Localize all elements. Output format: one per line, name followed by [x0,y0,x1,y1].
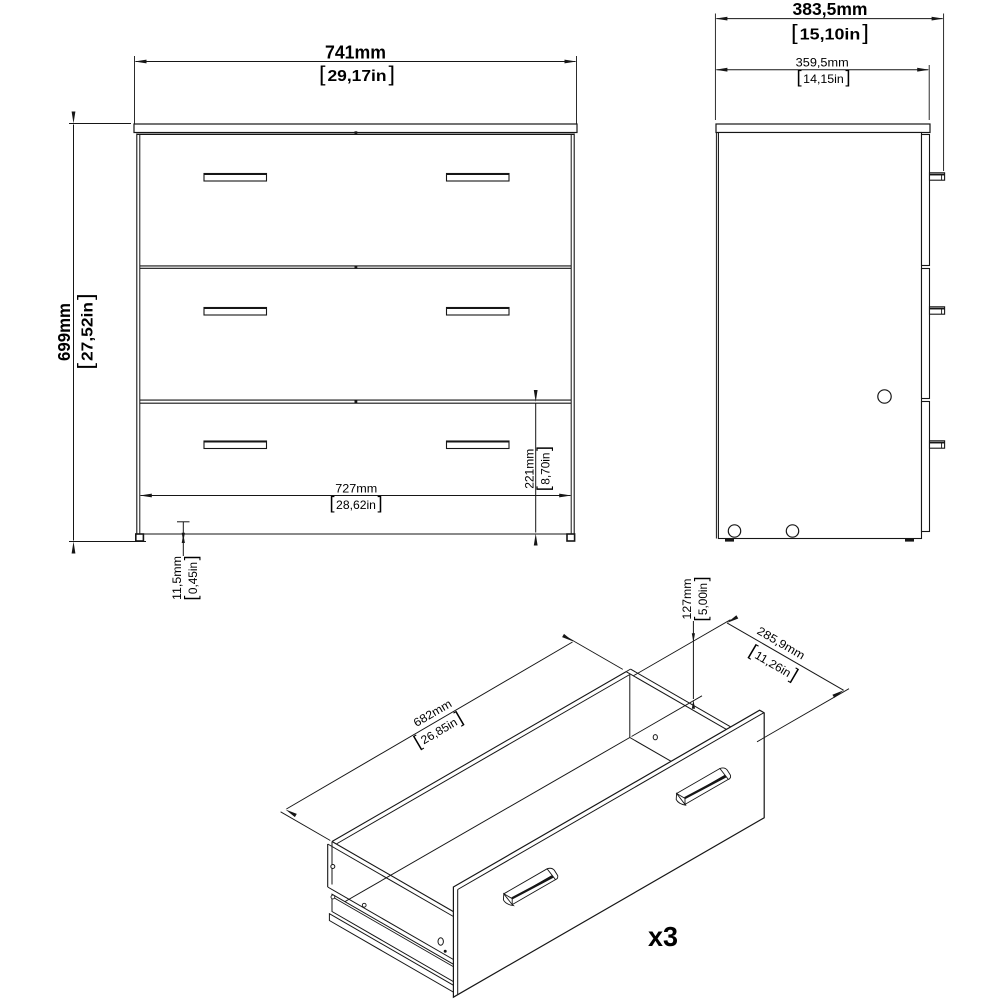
svg-text:[ 5,00in ]: [ 5,00in ] [691,577,711,622]
svg-text:383,5mm: 383,5mm [793,0,868,19]
svg-text:[ 8,70in ]: [ 8,70in ] [534,446,554,491]
svg-text:221mm: 221mm [523,449,536,489]
svg-text:[ 27,52in ]: [ 27,52in ] [74,294,98,370]
svg-text:741mm: 741mm [325,42,386,62]
svg-text:x3: x3 [648,921,678,952]
svg-text:[ 29,17in ]: [ 29,17in ] [319,62,395,86]
svg-text:[ 28,62in ]: [ 28,62in ] [330,493,383,513]
svg-text:[ 0,45in ]: [ 0,45in ] [181,556,201,601]
svg-text:727mm: 727mm [335,483,377,496]
svg-text:359,5mm: 359,5mm [796,57,849,70]
svg-text:127mm: 127mm [681,579,694,620]
svg-text:699mm: 699mm [54,303,74,361]
svg-text:[ 15,10in ]: [ 15,10in ] [791,21,869,45]
